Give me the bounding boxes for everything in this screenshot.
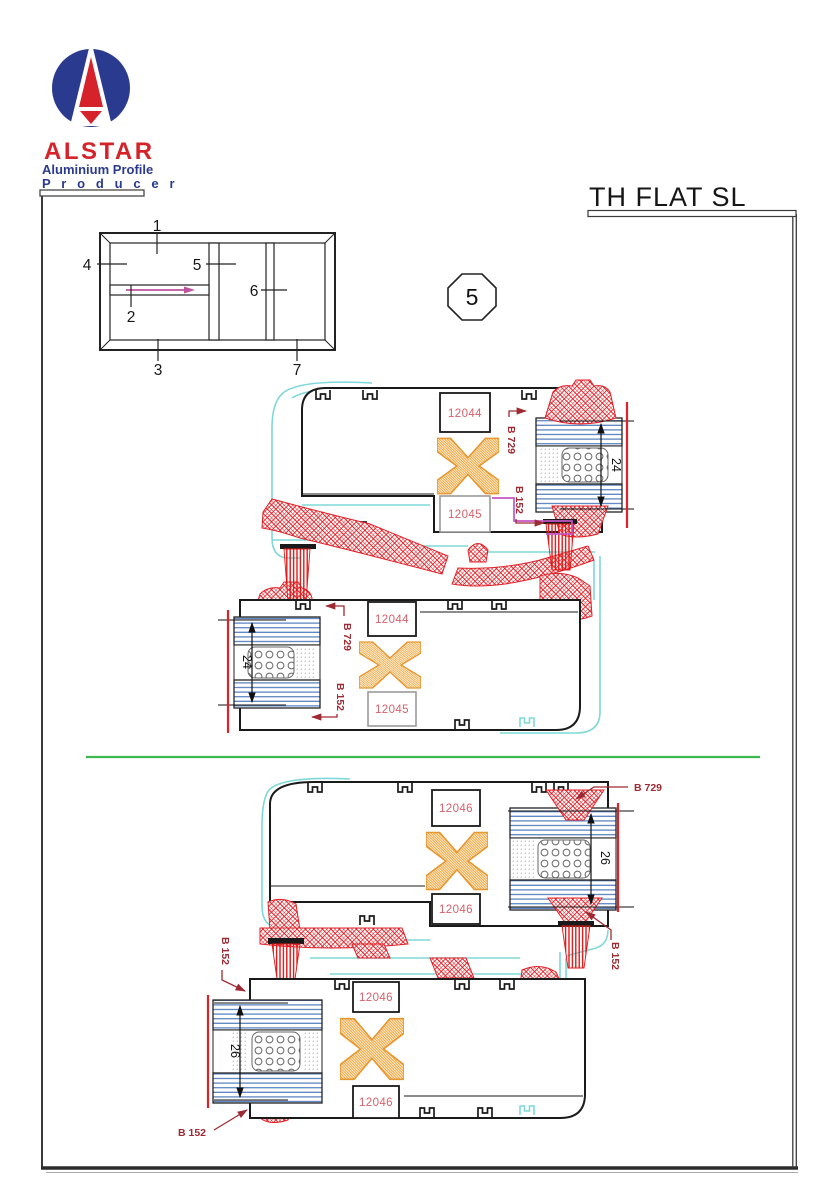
figure-1: 12044 12045 12044 12045 [218,380,634,733]
dimension-value: 26 [228,1044,242,1058]
part-number: 12044 [375,614,409,626]
dimension-value: 24 [609,458,623,472]
part-number: 12044 [448,408,482,420]
dimension-value: 24 [240,655,254,669]
profile-hook [360,916,374,925]
callout-3: 3 [154,362,163,379]
gasket-label: B 729 [341,623,353,651]
part-number: 12046 [359,1097,393,1109]
logo-tagline-2: P r o d u c e r [42,176,178,191]
window-schematic: 1 2 3 4 5 6 7 [83,218,335,379]
alstar-logo: ALSTAR Aluminium Profile P r o d u c e r [42,40,178,191]
part-number: 12046 [359,992,393,1004]
gasket-label: B 152 [334,683,346,711]
schematic-mullion [209,243,219,340]
gasket-label: B 152 [513,486,525,514]
callout-1: 1 [153,218,162,235]
part-number: 12046 [439,803,473,815]
detail-badge: 5 [448,274,496,320]
drawing-sheet: ALSTAR Aluminium Profile P r o d u c e r… [0,0,829,1200]
gasket-label: B 152 [178,1127,206,1139]
logo-brand-text: ALSTAR [44,138,155,165]
callout-4: 4 [83,257,92,274]
schematic-divider [266,243,274,340]
callout-7: 7 [293,362,302,379]
part-number: 12045 [448,509,482,521]
dimension-value: 26 [598,851,612,865]
logo-tagline-1: Aluminium Profile [42,162,153,177]
callout-5: 5 [193,257,202,274]
callout-6: 6 [250,283,259,300]
figure-2: 12046 12046 12046 12046 [178,778,662,1139]
gasket-label: B 152 [219,937,231,965]
badge-number: 5 [466,284,479,310]
gasket-label: B 729 [634,782,662,794]
part-number: 12045 [375,704,409,716]
callout-2: 2 [127,309,136,326]
part-number: 12046 [439,904,473,916]
gasket-label: B 729 [505,426,517,454]
sheet-title: TH FLAT SL [589,182,747,212]
gasket-label: B 152 [609,942,621,970]
